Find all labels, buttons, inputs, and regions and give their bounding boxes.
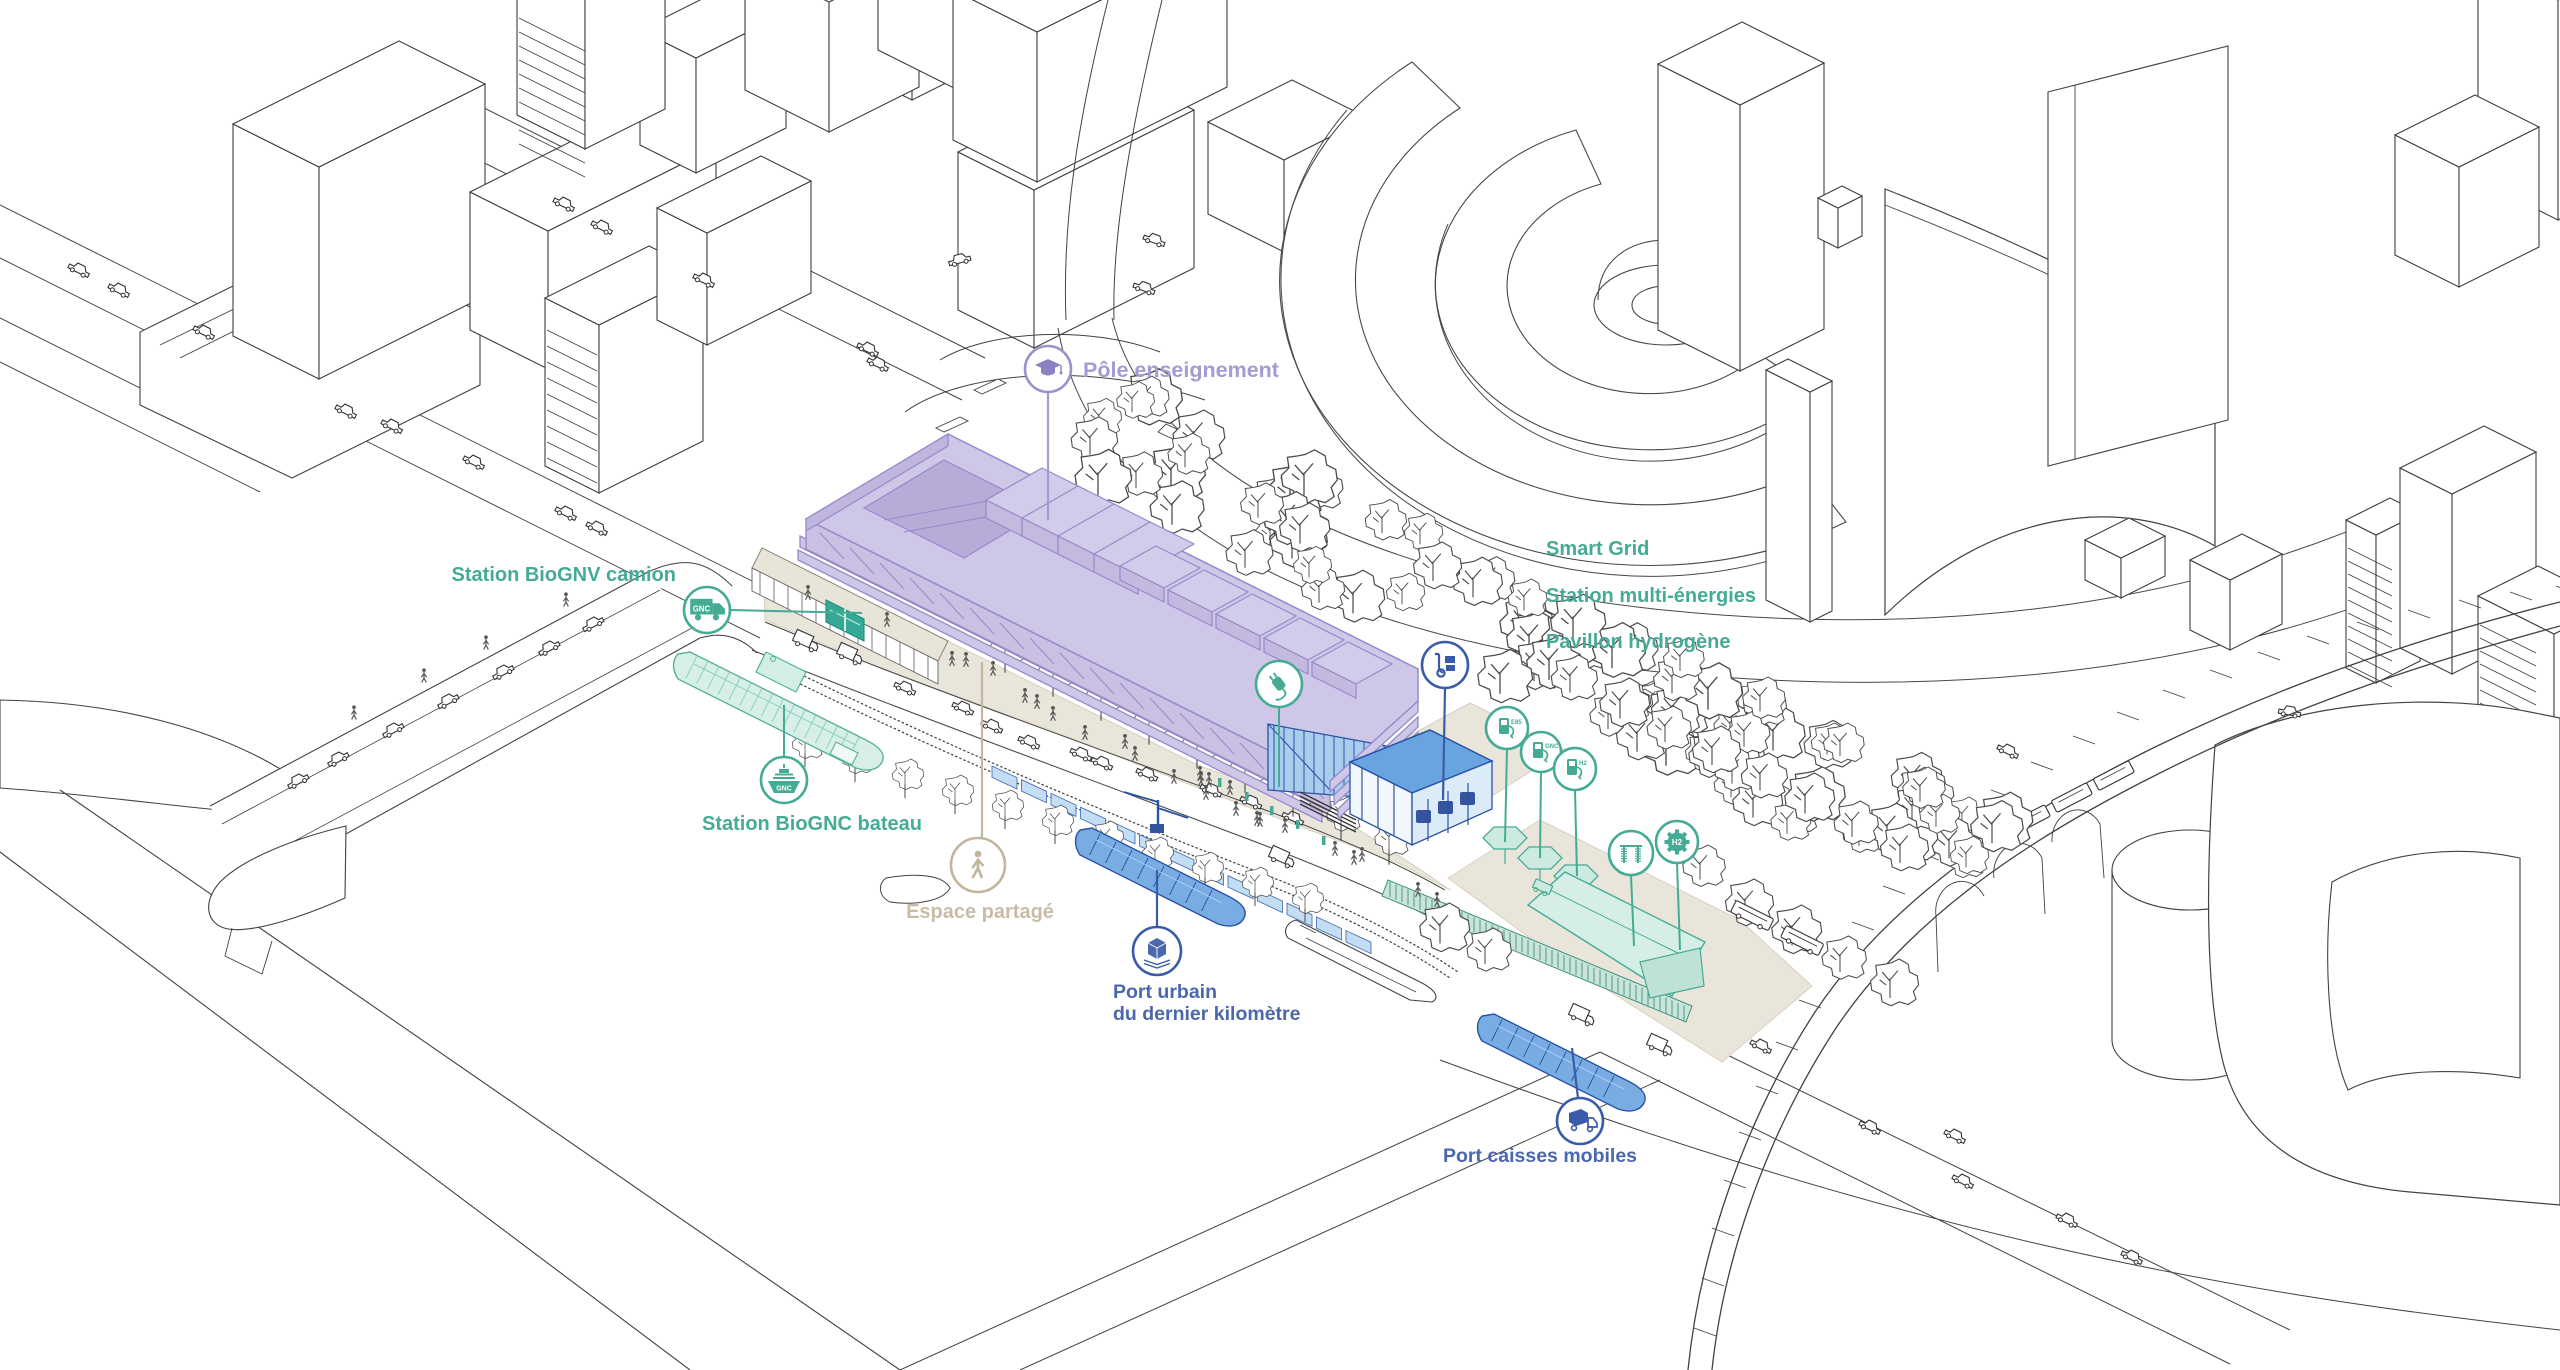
svg-text:H2: H2 [1579,761,1587,767]
svg-text:Espace partagé: Espace partagé [906,901,1054,923]
svg-text:Station BioGNC bateau: Station BioGNC bateau [702,813,922,835]
svg-text:GNC: GNC [776,786,792,793]
svg-text:Pavillon hydrogène: Pavillon hydrogène [1546,631,1730,653]
svg-text:Station multi-énergies: Station multi-énergies [1546,585,1756,607]
svg-text:Port urbain: Port urbain [1113,981,1217,1003]
svg-text:GNC: GNC [693,605,711,614]
svg-text:E85: E85 [1511,720,1522,726]
svg-text:H2: H2 [1672,838,1683,847]
svg-text:GNC: GNC [1545,744,1559,750]
svg-text:Pôle enseignement: Pôle enseignement [1083,358,1279,382]
svg-text:Smart Grid: Smart Grid [1546,538,1649,560]
svg-text:Station BioGNV camion: Station BioGNV camion [452,564,676,586]
svg-text:du dernier kilomètre: du dernier kilomètre [1113,1003,1301,1025]
svg-text:Port caisses mobiles: Port caisses mobiles [1443,1145,1637,1167]
